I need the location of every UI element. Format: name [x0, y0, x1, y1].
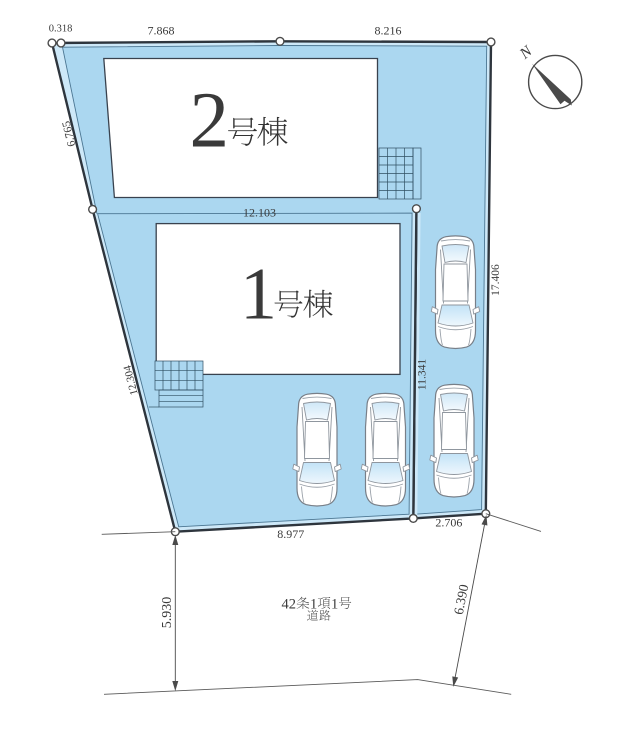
svg-text:1: 1 [240, 254, 277, 336]
svg-text:0.318: 0.318 [49, 24, 73, 35]
svg-text:8.216: 8.216 [375, 23, 402, 37]
svg-text:12.103: 12.103 [243, 206, 276, 220]
svg-text:2: 2 [289, 597, 296, 613]
svg-text:17.406: 17.406 [490, 264, 502, 296]
svg-text:5.930: 5.930 [160, 597, 175, 629]
svg-text:7.868: 7.868 [148, 23, 175, 37]
svg-text:2.706: 2.706 [435, 516, 462, 530]
svg-text:8.977: 8.977 [277, 527, 304, 541]
svg-text:11.341: 11.341 [417, 359, 429, 390]
svg-text:2: 2 [190, 77, 230, 164]
svg-text:1: 1 [331, 597, 338, 613]
